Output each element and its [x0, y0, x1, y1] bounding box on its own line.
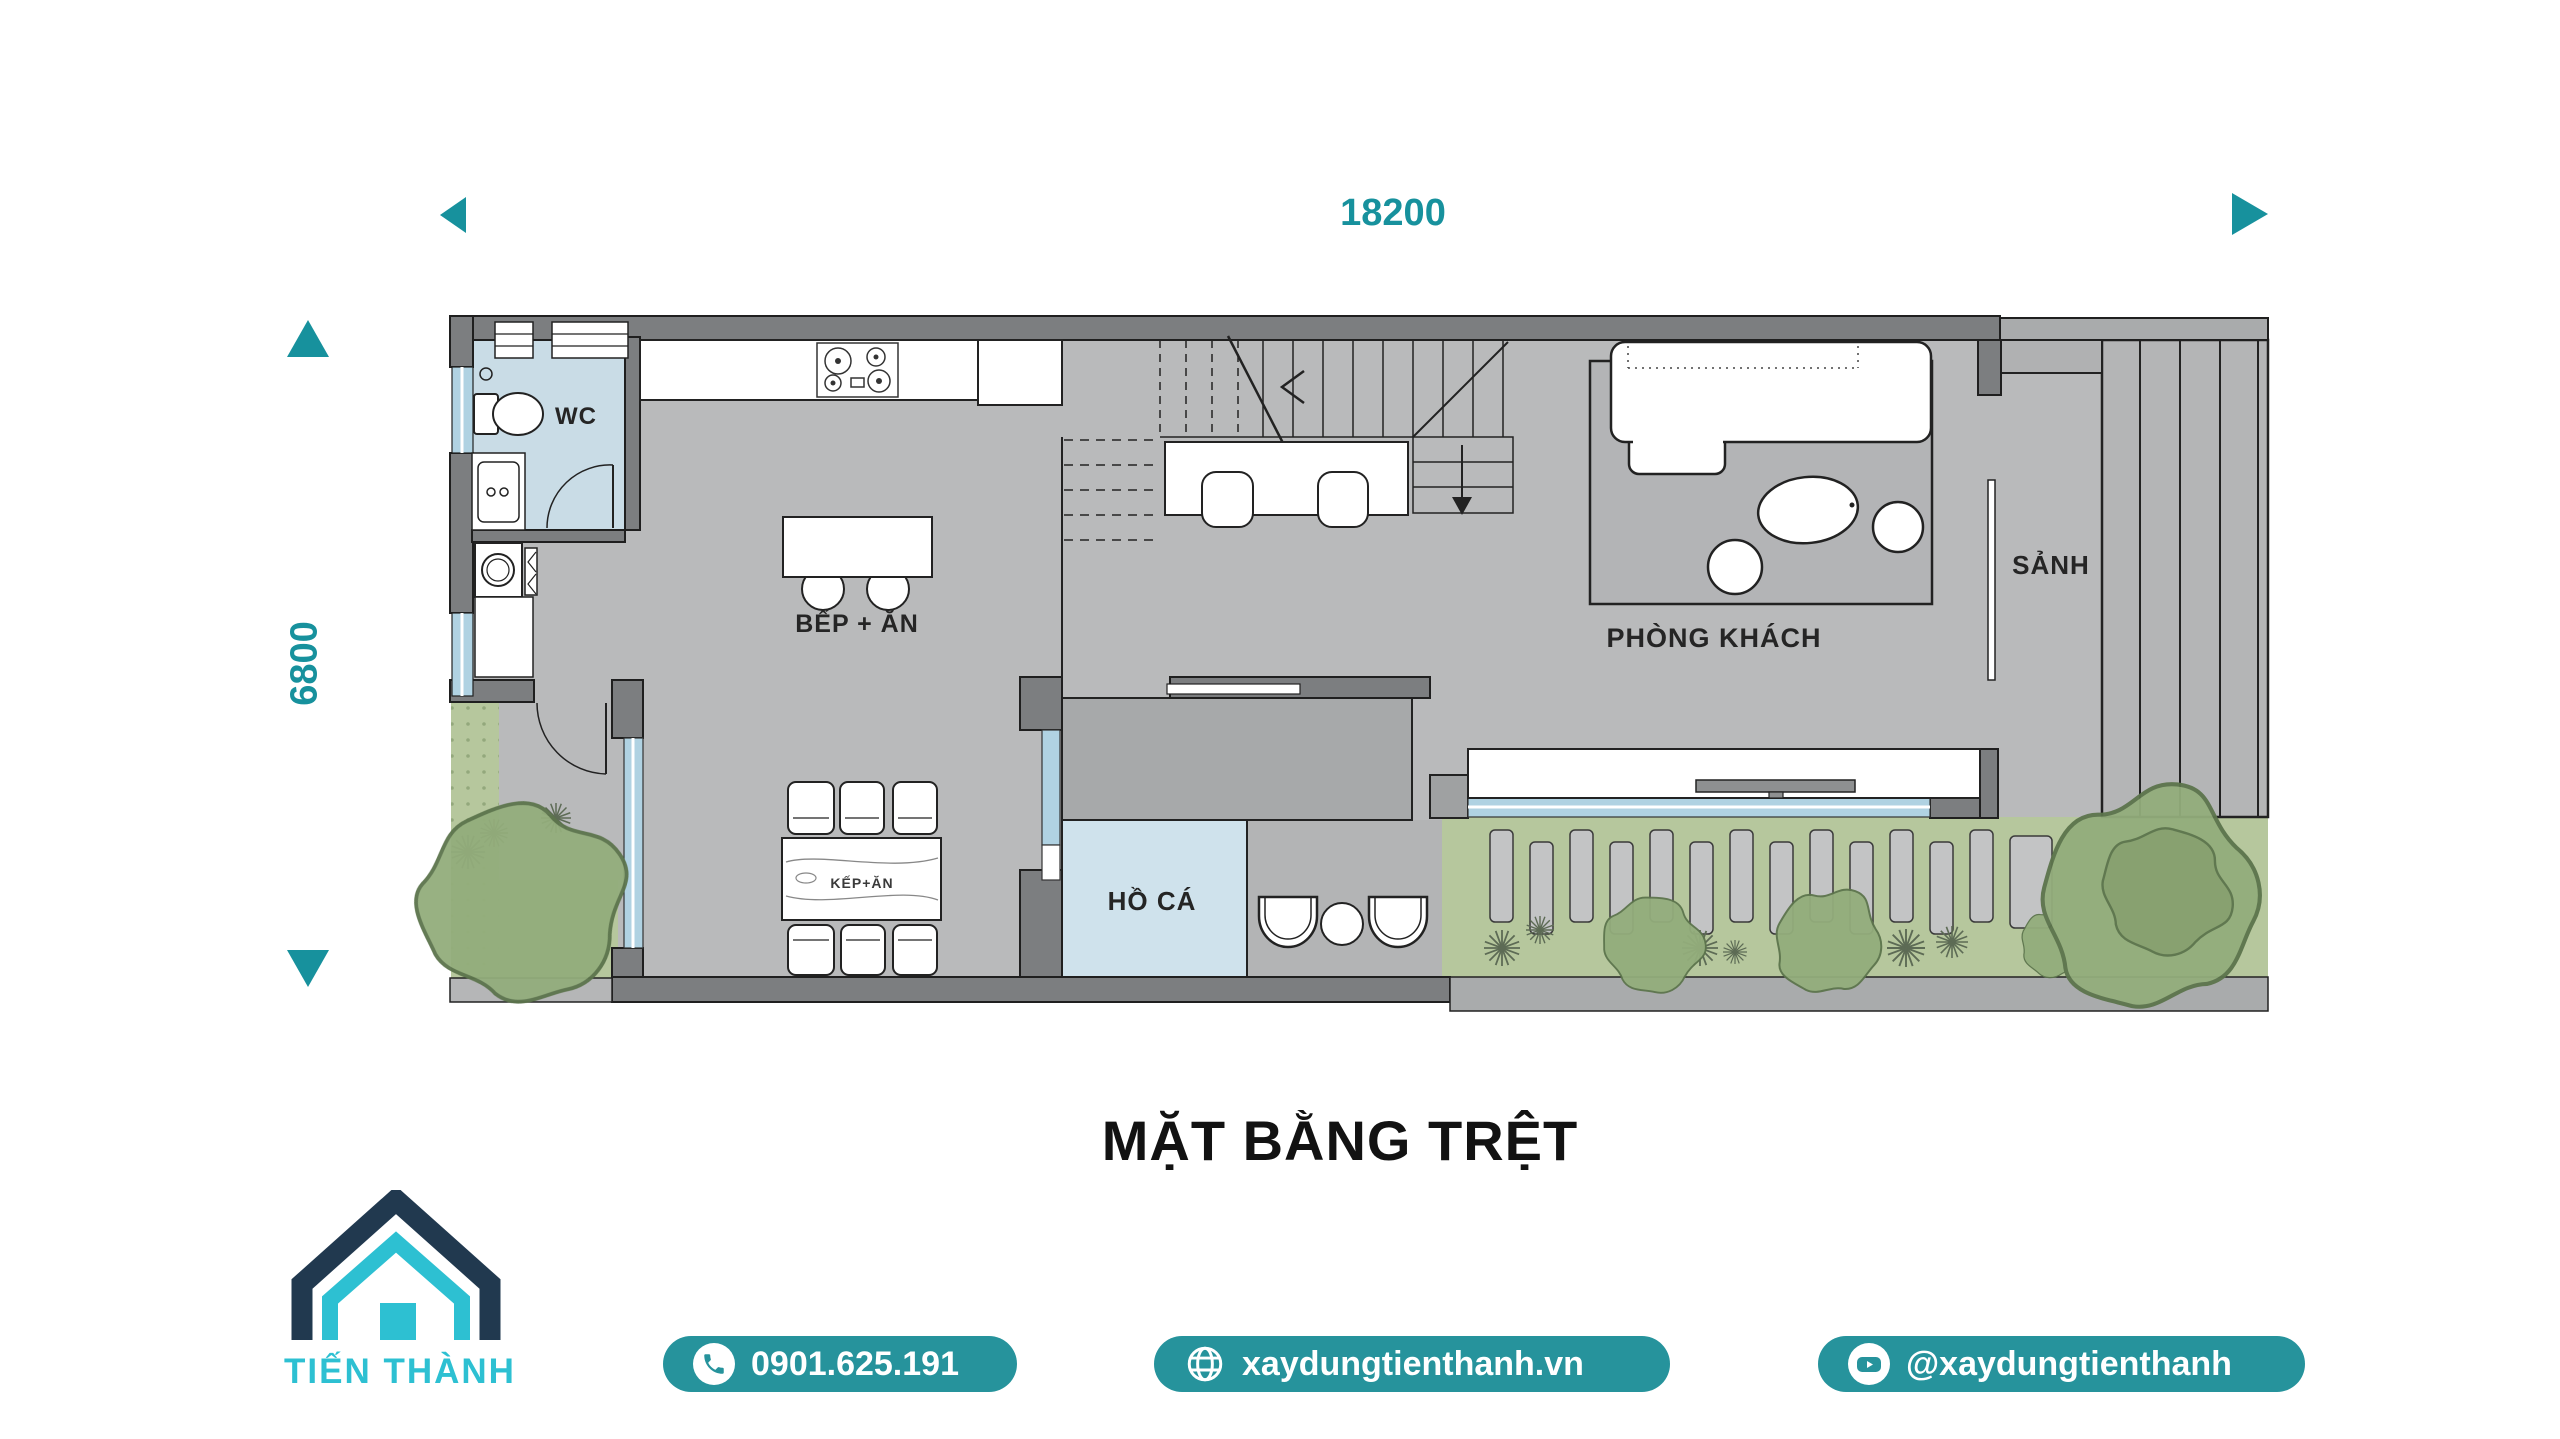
bar-stool — [1318, 472, 1368, 527]
floor-plan-drawing: KẾP+ĂN — [440, 310, 2270, 1015]
page-title: MẶT BẰNG TRỆT — [1040, 1108, 1640, 1173]
sofa — [1611, 342, 1931, 442]
patio-table — [1321, 903, 1363, 945]
tv-on-wall — [1167, 684, 1300, 694]
floor-plan-page: 18200 6800 — [0, 0, 2560, 1439]
room-label-living: PHÒNG KHÁCH — [1606, 622, 1821, 653]
dimension-arrow-up-icon — [287, 320, 329, 357]
column — [1430, 775, 1468, 818]
website-url: xaydungtienthanh.vn — [1242, 1345, 1584, 1384]
kitchen-counter — [640, 340, 1062, 405]
social-button[interactable]: @xaydungtienthanh — [1818, 1336, 2305, 1392]
phone-number: 0901.625.191 — [751, 1345, 959, 1384]
room-label-kitchen: BẾP + ĂN — [795, 609, 919, 638]
dimension-arrow-down-icon — [287, 950, 329, 987]
tv — [1696, 780, 1855, 792]
entry-deck — [2102, 340, 2268, 817]
room-label-hall: SẢNH — [2012, 550, 2090, 580]
dimension-top-label: 18200 — [1333, 192, 1453, 235]
pouf — [1708, 540, 1762, 594]
brand-logo-icon — [280, 1190, 520, 1350]
room-label-wc: WC — [555, 403, 597, 430]
sliding-door — [1988, 480, 1995, 680]
lounge-platform — [1062, 698, 1412, 820]
brand-name: TIẾN THÀNH — [270, 1352, 530, 1392]
patio-chair — [1369, 897, 1427, 947]
phone-button[interactable]: 0901.625.191 — [663, 1336, 1017, 1392]
dimension-left-label: 6800 — [284, 604, 327, 724]
hall-cabinet — [2001, 340, 2102, 373]
room-label-pond: HỒ CÁ — [1108, 886, 1197, 916]
dining-set: KẾP+ĂN — [782, 782, 941, 975]
pouf — [1873, 502, 1923, 552]
youtube-icon — [1848, 1343, 1890, 1385]
globe-icon — [1184, 1343, 1226, 1385]
dining-table-label: KẾP+ĂN — [830, 875, 893, 891]
website-button[interactable]: xaydungtienthanh.vn — [1154, 1336, 1670, 1392]
bar-stool — [1202, 472, 1253, 527]
dimension-arrow-right-icon — [2232, 193, 2268, 235]
patio-chair — [1259, 897, 1317, 947]
social-handle: @xaydungtienthanh — [1906, 1345, 2232, 1384]
dimension-arrow-left-icon — [440, 197, 466, 233]
phone-icon — [693, 1343, 735, 1385]
